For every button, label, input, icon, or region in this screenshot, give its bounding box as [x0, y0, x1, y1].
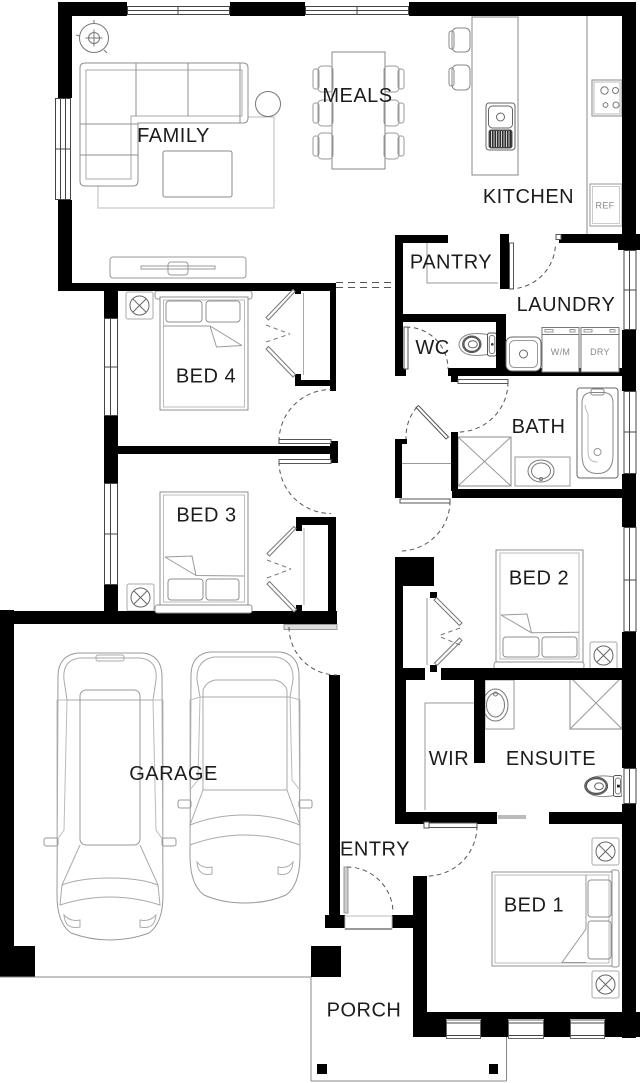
svg-text:PANTRY: PANTRY [410, 252, 492, 274]
svg-text:DRY: DRY [590, 347, 610, 357]
svg-text:BED 2: BED 2 [509, 568, 569, 590]
svg-text:GARAGE: GARAGE [129, 763, 218, 785]
svg-text:W/M: W/M [551, 347, 570, 357]
svg-text:BED 4: BED 4 [176, 366, 236, 388]
svg-text:KITCHEN: KITCHEN [483, 186, 574, 208]
svg-text:BED 1: BED 1 [504, 895, 564, 917]
svg-text:REF: REF [596, 201, 615, 211]
svg-text:MEALS: MEALS [322, 85, 392, 107]
svg-text:WIR: WIR [429, 748, 469, 770]
svg-text:ENTRY: ENTRY [340, 839, 410, 861]
svg-text:BATH: BATH [512, 416, 566, 438]
svg-text:ENSUITE: ENSUITE [506, 748, 596, 770]
svg-text:PORCH: PORCH [327, 1000, 402, 1022]
svg-text:FAMILY: FAMILY [137, 125, 210, 147]
svg-text:BED 3: BED 3 [176, 505, 236, 527]
svg-text:LAUNDRY: LAUNDRY [517, 294, 616, 316]
svg-text:WC: WC [415, 337, 449, 359]
